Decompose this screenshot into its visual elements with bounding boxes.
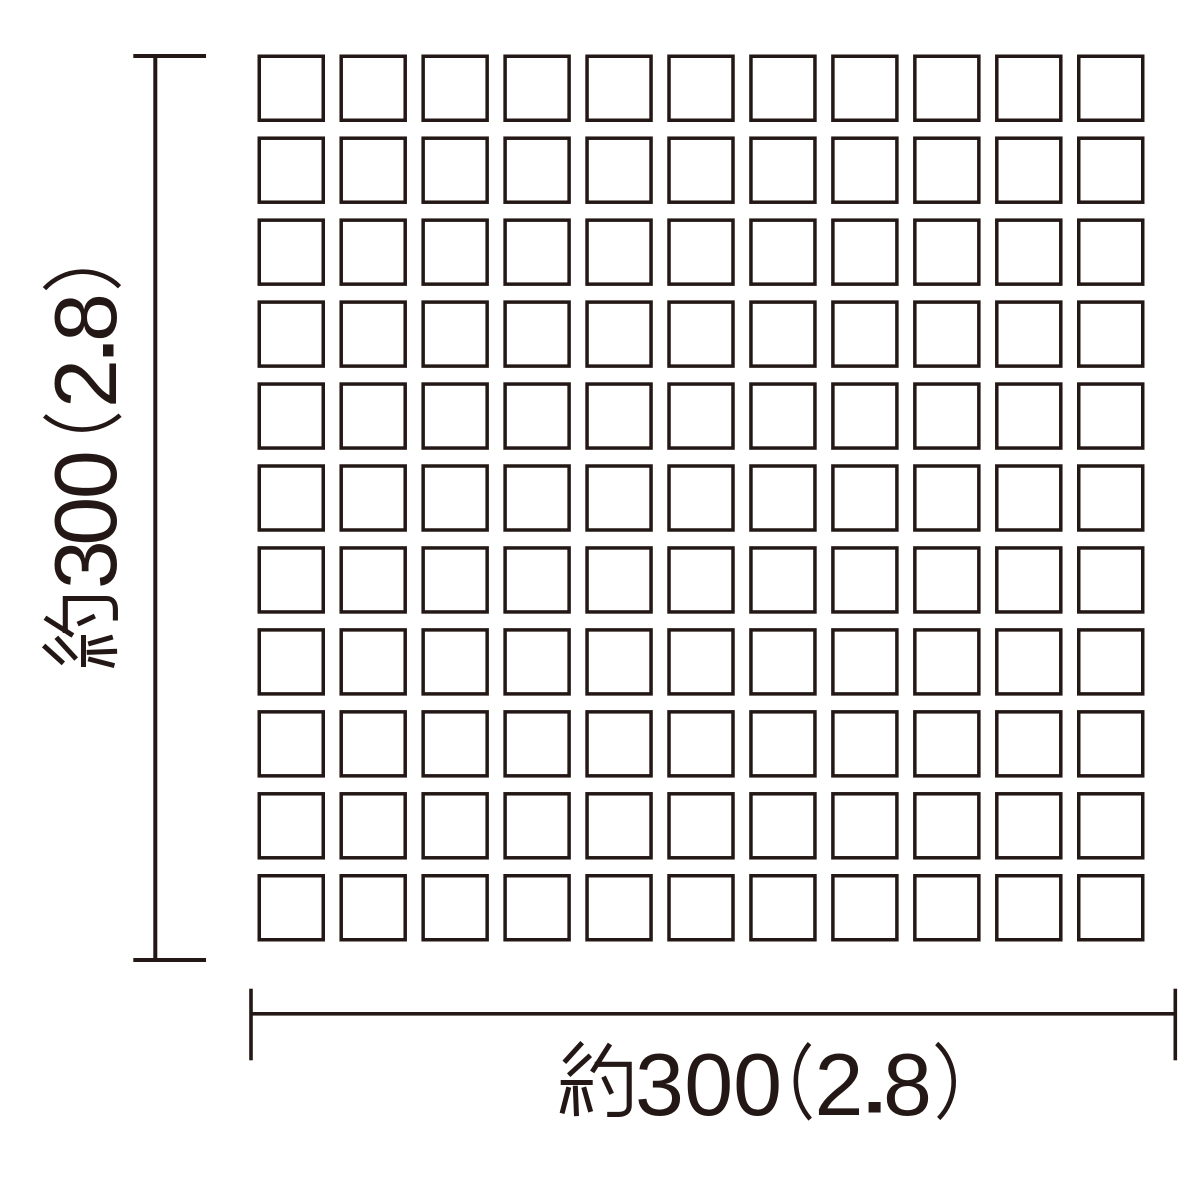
svg-text:300: 300	[635, 1035, 782, 1134]
svg-text:300: 300	[36, 450, 135, 589]
